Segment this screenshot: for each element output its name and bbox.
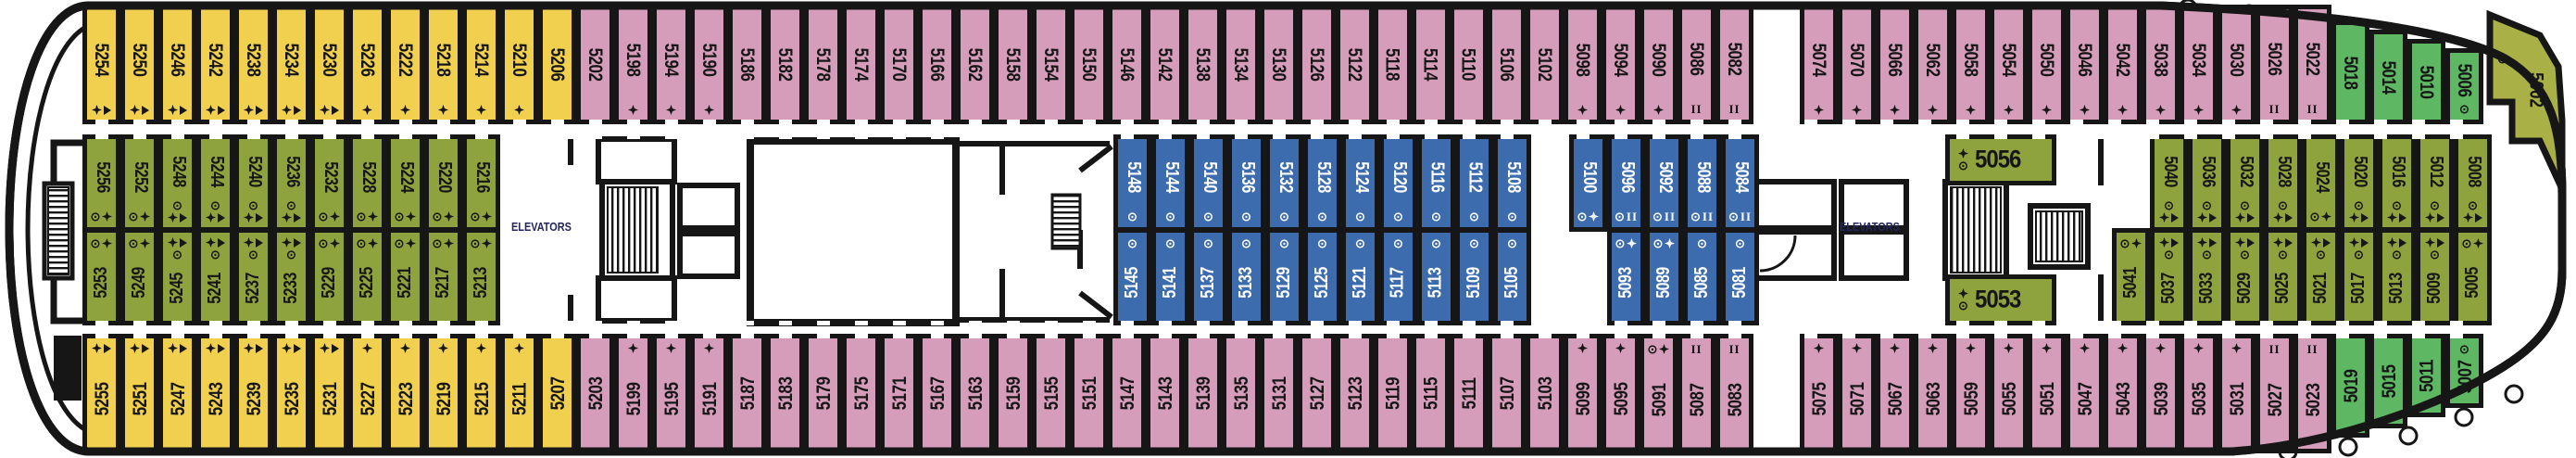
- cabin-5012: 5012⊙: [2416, 134, 2454, 232]
- circle-dot-icon: ⊙: [1203, 210, 1213, 223]
- cabin-icons: ⊙: [1507, 210, 1517, 223]
- star-icon: [2080, 343, 2090, 353]
- cabin-number: 5198: [617, 14, 650, 105]
- cabin-5133: ⊙5133: [1227, 228, 1265, 325]
- cabin-icons: ⊙: [244, 199, 263, 223]
- cabin-5226: 5226: [348, 5, 386, 124]
- circle-dot-icon: ⊙: [1355, 237, 1365, 249]
- cabin-number: 5042: [2106, 14, 2140, 105]
- cabin-5093: ⊙5093: [1607, 228, 1645, 325]
- triangle-icon: [180, 106, 187, 115]
- cabin-5182: 5182: [766, 5, 804, 124]
- cabin-number: 5190: [693, 14, 726, 105]
- cabin-5211: 5211: [500, 334, 538, 453]
- cabin-5128: 5128⊙: [1303, 134, 1341, 232]
- cabin-number: 5143: [1149, 343, 1182, 444]
- circle-dot-icon: ⊙: [2430, 248, 2440, 261]
- star-icon: [206, 212, 216, 223]
- cabin-icons: ⊙: [2197, 199, 2217, 223]
- cabin-icons: ⊙: [1653, 237, 1676, 249]
- cabin-number: 5055: [1992, 353, 2026, 444]
- circle-dot-icon: ⊙: [319, 237, 329, 249]
- cabin-5174: 5174: [842, 5, 880, 124]
- triangle-icon: [332, 344, 339, 353]
- circle-dot-icon: ⊙: [2392, 199, 2402, 211]
- circle-dot-icon: ⊙: [2354, 248, 2364, 261]
- cabin-number: 5144: [1155, 144, 1187, 210]
- cabin-number: 5182: [769, 14, 802, 115]
- cabin-icons: ⊙: [2159, 199, 2179, 223]
- cabin-icons: ⊙II: [1652, 210, 1676, 223]
- cabin-5251: 5251: [120, 334, 158, 453]
- cabin-5074: 5074: [1800, 5, 1838, 124]
- cabin-number: 5230: [313, 14, 346, 105]
- cabin-5256: 5256⊙: [82, 134, 120, 232]
- cabin-5162: 5162: [956, 5, 994, 124]
- cabin-icons: [704, 105, 714, 115]
- cabin-5220: 5220⊙: [424, 134, 462, 232]
- cabin-icons: [666, 343, 676, 353]
- cabin-icons: [2042, 343, 2052, 353]
- circle-dot-icon: ⊙: [1469, 237, 1479, 249]
- cabin-number: 5187: [731, 343, 764, 444]
- cabin-number: 5237: [238, 261, 270, 316]
- cabin-number: 5194: [655, 14, 688, 105]
- cabin-icons: ⊙: [1469, 210, 1479, 223]
- cabin-number: 5094: [1604, 14, 1638, 105]
- cabin-number: 5075: [1803, 353, 1836, 444]
- cabin-icons: ⊙: [1241, 210, 1251, 223]
- cabin-icons: ⊙: [1648, 343, 1670, 355]
- cabin-5141: ⊙5141: [1151, 228, 1189, 325]
- cabin-icons: ⊙: [2459, 103, 2469, 115]
- cabin-number: 5202: [579, 14, 612, 115]
- circle-dot-icon: ⊙: [2430, 199, 2440, 211]
- cabin-5037: ⊙5037: [2150, 228, 2188, 325]
- circle-dot-icon: ⊙: [2459, 343, 2469, 355]
- cabin-number: 5251: [123, 353, 157, 444]
- cabin-icons: [1814, 105, 1824, 115]
- circle-dot-icon: ⊙: [1735, 237, 1745, 249]
- cabin-number: 5035: [2182, 353, 2216, 444]
- cabin-5127: 5127: [1298, 334, 1336, 453]
- triangle-icon: [2247, 213, 2255, 223]
- cabin-icons: ⊙: [1355, 210, 1365, 223]
- cabin-icons: ⊙II: [1615, 210, 1638, 223]
- cabin-5253: ⊙5253: [82, 228, 120, 325]
- twin-bars-icon: II: [1728, 343, 1740, 355]
- circle-dot-icon: ⊙: [395, 210, 405, 223]
- cabin-number: 5040: [2154, 144, 2185, 199]
- cabin-icons: [438, 105, 448, 115]
- star-icon: [206, 237, 216, 248]
- cabin-number: 5231: [313, 353, 346, 444]
- cabin-icons: ⊙: [1697, 237, 1707, 249]
- cabin-5244: 5244⊙: [196, 134, 234, 232]
- twin-bars-icon: II: [1690, 343, 1702, 355]
- cabin-number: 5113: [1421, 249, 1451, 316]
- star-icon: [244, 237, 254, 248]
- star-icon: [2193, 343, 2204, 353]
- cabin-number: 5127: [1301, 343, 1334, 444]
- star-icon: [1577, 105, 1588, 115]
- cabin-number: 5171: [883, 343, 916, 444]
- cabin-5138: 5138: [1184, 5, 1222, 124]
- triangle-icon: [104, 344, 111, 353]
- triangle-icon: [2399, 213, 2406, 223]
- cabin-number: 5195: [655, 353, 688, 444]
- cabin-5009: ⊙5009: [2416, 228, 2454, 325]
- circle-dot-icon: ⊙: [91, 210, 101, 223]
- cabin-5107: 5107: [1488, 334, 1526, 453]
- cabin-number: 5102: [1528, 14, 1562, 115]
- cabin-number: 5136: [1231, 144, 1263, 210]
- cabin-number: 5235: [275, 353, 308, 444]
- cabin-number: 5139: [1187, 343, 1220, 444]
- cabin-5038: 5038: [2142, 5, 2180, 124]
- triangle-icon: [256, 238, 263, 248]
- cabin-number: 5114: [1414, 14, 1447, 115]
- cabin-number: 5038: [2144, 14, 2178, 105]
- cabin-icons: ⊙: [2120, 237, 2142, 249]
- cabin-number: 5122: [1338, 14, 1372, 115]
- cabin-number: 5220: [428, 144, 459, 210]
- cabin-icons: ⊙: [1431, 237, 1441, 249]
- cabin-5016: 5016⊙: [2378, 134, 2416, 232]
- cabin-icons: ⊙: [1279, 237, 1289, 249]
- cabin-number: 5214: [465, 14, 498, 105]
- cabin-number: 5010: [2410, 48, 2444, 115]
- cabin-5132: 5132⊙: [1265, 134, 1303, 232]
- circle-dot-icon: ⊙: [1958, 159, 1968, 172]
- cabin-icons: ⊙: [1241, 237, 1251, 249]
- cabin-number: 5051: [2030, 353, 2064, 444]
- circle-dot-icon: ⊙: [2459, 103, 2469, 115]
- star-icon: [2231, 105, 2242, 115]
- star-icon: [168, 237, 178, 248]
- cabin-number: 5084: [1725, 144, 1756, 210]
- cabin-number: 5215: [465, 353, 498, 444]
- cabin-5175: 5175: [842, 334, 880, 453]
- triangle-icon: [2171, 238, 2179, 248]
- cabin-5148: 5148⊙: [1113, 134, 1151, 232]
- cabin-number: 5088: [1687, 144, 1718, 210]
- cabin-number: 5031: [2220, 353, 2254, 444]
- cabin-number: 5140: [1193, 144, 1225, 210]
- cabin-5027: II5027: [2256, 334, 2293, 453]
- star-icon: [2231, 343, 2242, 353]
- cabin-icons: [168, 343, 187, 353]
- cabin-icons: ⊙: [206, 199, 225, 223]
- cabin-number: 5236: [276, 144, 308, 199]
- cabin-number: 5093: [1611, 249, 1642, 316]
- star-icon: [2387, 212, 2397, 223]
- star-icon: [444, 211, 454, 222]
- star-icon: [1966, 343, 1976, 353]
- circle-dot-icon: ⊙: [1355, 210, 1365, 223]
- star-icon: [2193, 105, 2204, 115]
- cabin-icons: [2042, 105, 2052, 115]
- circle-dot-icon: ⊙: [1165, 210, 1175, 223]
- cabin-5231: 5231: [310, 334, 348, 453]
- cabin-number: 5108: [1497, 144, 1528, 210]
- circle-dot-icon: ⊙: [286, 248, 296, 261]
- star-icon: [2273, 212, 2283, 223]
- star-icon: [438, 105, 448, 115]
- cabin-5186: 5186: [728, 5, 766, 124]
- triangle-icon: [2209, 238, 2217, 248]
- cabin-5055: 5055: [1990, 334, 2028, 453]
- cabin-number: 5130: [1263, 14, 1296, 115]
- cabin-icons: [514, 105, 524, 115]
- star-icon: [168, 105, 178, 115]
- cabin-5131: 5131: [1260, 334, 1298, 453]
- cabin-number: 5059: [1954, 353, 1988, 444]
- cabin-icons: ⊙: [471, 237, 493, 249]
- cabin-icons: [400, 343, 410, 353]
- cabin-number: 5066: [1879, 14, 1912, 105]
- circle-dot-icon: ⊙: [1241, 210, 1251, 223]
- twin-bars-icon: II: [1627, 210, 1638, 223]
- star-icon: [1589, 211, 1599, 222]
- cabin-icons: [282, 343, 301, 353]
- cabin-number: 5154: [1035, 14, 1068, 115]
- cabin-icons: ⊙: [129, 237, 151, 249]
- cabin-icons: ⊙: [2459, 343, 2469, 355]
- star-icon: [2425, 237, 2435, 248]
- star-icon: [102, 238, 112, 248]
- cabin-5059: 5059: [1952, 334, 1990, 453]
- cabin-5116: 5116⊙: [1417, 134, 1455, 232]
- star-icon: [2117, 343, 2128, 353]
- cabin-icons: [244, 105, 263, 115]
- cabin-number: 5131: [1263, 343, 1296, 444]
- cabin-5247: 5247: [158, 334, 196, 453]
- cabin-5025: ⊙5025: [2264, 228, 2302, 325]
- circle-dot-icon: ⊙: [248, 248, 258, 261]
- circle-dot-icon: ⊙: [2164, 199, 2174, 211]
- cabin-5166: 5166: [918, 5, 956, 124]
- star-icon: [1627, 238, 1637, 248]
- twin-bars-icon: II: [2268, 343, 2280, 355]
- cabin-number: 5256: [86, 144, 118, 210]
- cabin-number: 5233: [276, 261, 308, 316]
- star-icon: [362, 105, 372, 115]
- star-icon: [330, 238, 340, 248]
- cabin-icons: [1577, 105, 1588, 115]
- star-icon: [2425, 212, 2435, 223]
- cabin-number: 5023: [2296, 355, 2330, 444]
- cabin-icons: ⊙: [433, 210, 455, 223]
- cabin-number: 5207: [541, 343, 574, 444]
- star-icon: [1615, 105, 1626, 115]
- star-icon: [168, 343, 178, 353]
- triangle-icon: [2285, 213, 2293, 223]
- circle-dot-icon: ⊙: [129, 210, 139, 223]
- cabin-number: 5217: [428, 249, 459, 316]
- cabin-5046: 5046: [2066, 5, 2104, 124]
- cabin-number: 5047: [2068, 353, 2102, 444]
- cabin-5047: 5047: [2066, 334, 2104, 453]
- cabin-number: 5081: [1725, 249, 1756, 316]
- triangle-icon: [142, 106, 149, 115]
- cabin-number: 5067: [1879, 353, 1912, 444]
- cabin-5106: 5106: [1488, 5, 1526, 124]
- cabin-number: 5186: [731, 14, 764, 115]
- cabin-number: 5083: [1718, 355, 1752, 444]
- cabin-number: 5096: [1611, 144, 1642, 210]
- cabin-icons: [206, 343, 225, 353]
- cabin-icons: ⊙: [395, 237, 417, 249]
- cabin-icons: ⊙: [1393, 237, 1403, 249]
- star-icon: [2387, 237, 2397, 248]
- star-icon: [666, 343, 676, 353]
- cabin-number: 5106: [1490, 14, 1524, 115]
- cabin-number: 5008: [2457, 144, 2489, 199]
- cabin-5102: 5102: [1526, 5, 1564, 124]
- cabin-icons: [362, 343, 372, 353]
- circle-dot-icon: ⊙: [1958, 299, 1968, 312]
- cabin-number: 5014: [2372, 39, 2406, 115]
- cabin-number: 5033: [2192, 261, 2223, 316]
- cabin-5248: 5248⊙: [158, 134, 196, 232]
- cabin-5033: ⊙5033: [2188, 228, 2226, 325]
- cabin-5179: 5179: [804, 334, 842, 453]
- cabin-5007: ⊙5007: [2445, 334, 2483, 408]
- circle-dot-icon: ⊙: [1615, 237, 1626, 249]
- cabin-icons: ⊙: [1165, 210, 1175, 223]
- star-icon: [130, 343, 140, 353]
- cabin-icons: [438, 343, 448, 353]
- cabin-5238: 5238: [234, 5, 272, 124]
- twin-bars-icon: II: [2268, 103, 2280, 115]
- star-icon: [140, 211, 150, 222]
- cabin-icons: ⊙: [2425, 237, 2444, 261]
- cabin-icons: [2004, 343, 2014, 353]
- cabin-icons: [1814, 343, 1824, 353]
- cabin-number: 5155: [1035, 343, 1068, 444]
- cabin-5031: 5031: [2218, 334, 2256, 453]
- cabin-5187: 5187: [728, 334, 766, 453]
- circle-dot-icon: ⊙: [2120, 237, 2130, 249]
- cabin-number: 5150: [1073, 14, 1106, 115]
- cabin-5015: 5015: [2369, 334, 2407, 428]
- cabin-5249: ⊙5249: [120, 228, 158, 325]
- cabin-5118: 5118: [1374, 5, 1412, 124]
- cabin-icons: ⊙: [1203, 237, 1213, 249]
- star-icon: [320, 343, 330, 353]
- cabin-number: 5087: [1680, 355, 1714, 444]
- star-icon: [2004, 343, 2014, 353]
- cabin-5242: 5242: [196, 5, 234, 124]
- circle-dot-icon: ⊙: [357, 237, 367, 249]
- cabin-icons: [1890, 343, 1900, 353]
- cabin-icons: ⊙: [1355, 237, 1365, 249]
- circle-dot-icon: ⊙: [286, 199, 296, 211]
- circle-dot-icon: ⊙: [2316, 248, 2326, 261]
- cabin-5241: ⊙5241: [196, 228, 234, 325]
- cabin-number: 5174: [845, 14, 878, 115]
- circle-dot-icon: ⊙: [433, 210, 443, 223]
- cabin-number: 5248: [162, 144, 194, 199]
- cabin-icons: ⊙: [1393, 210, 1403, 223]
- cabin-icons: II: [1728, 343, 1740, 355]
- cabin-5234: 5234: [272, 5, 310, 124]
- circle-dot-icon: ⊙: [1653, 237, 1664, 249]
- cabin-icons: ⊙: [282, 237, 301, 261]
- cabin-icons: ⊙: [2197, 237, 2217, 261]
- cabin-5147: 5147: [1108, 334, 1146, 453]
- cabin-5230: 5230: [310, 5, 348, 124]
- cabin-5082: 5082II: [1715, 5, 1753, 124]
- star-icon: [168, 212, 178, 223]
- circle-dot-icon: ⊙: [210, 248, 220, 261]
- circle-dot-icon: ⊙: [357, 210, 367, 223]
- cabin-number: 5244: [200, 144, 232, 199]
- cabin-icons: [320, 105, 339, 115]
- circle-dot-icon: ⊙: [1652, 210, 1663, 223]
- cabin-number: 5255: [85, 353, 119, 444]
- cabin-number: 5116: [1421, 144, 1451, 210]
- cabin-number: 5159: [997, 343, 1030, 444]
- circle-dot-icon: ⊙: [1690, 210, 1701, 223]
- cabin-5245: ⊙5245: [158, 228, 196, 325]
- cabin-5124: 5124⊙: [1341, 134, 1379, 232]
- cabin-5011: 5011: [2407, 334, 2445, 417]
- cabin-5096: 5096⊙II: [1607, 134, 1645, 232]
- cabin-5137: ⊙5137: [1189, 228, 1227, 325]
- cabin-5219: 5219: [424, 334, 462, 453]
- cabin-icons: [476, 105, 486, 115]
- star-icon: [1814, 343, 1824, 353]
- cabin-5123: 5123: [1336, 334, 1374, 453]
- circle-dot-icon: ⊙: [1393, 237, 1403, 249]
- cabin-icons: ⊙: [1507, 237, 1517, 249]
- cabin-icons: [2117, 343, 2128, 353]
- cabin-5122: 5122: [1336, 5, 1374, 124]
- cabin-icons: [2231, 105, 2242, 115]
- cabin-number: 5191: [693, 353, 726, 444]
- cabin-5125: ⊙5125: [1303, 228, 1341, 325]
- cabin-5236: 5236⊙: [272, 134, 310, 232]
- cabin-number: 5210: [503, 14, 536, 105]
- cabin-number: 5253: [86, 249, 118, 316]
- cabin-5063: 5063: [1914, 334, 1952, 453]
- cabin-icons: ⊙: [2235, 237, 2255, 261]
- cabin-icons: [628, 105, 638, 115]
- cabin-icons: ⊙: [282, 199, 301, 223]
- cabin-5136: 5136⊙: [1227, 134, 1265, 232]
- circle-dot-icon: ⊙: [2240, 248, 2250, 261]
- cabin-icons: ⊙: [2349, 237, 2369, 261]
- circle-dot-icon: ⊙: [172, 248, 182, 261]
- circle-dot-icon: ⊙: [433, 237, 443, 249]
- circle-dot-icon: ⊙: [1431, 210, 1441, 223]
- cabin-number: 5022: [2296, 14, 2330, 103]
- circle-dot-icon: ⊙: [2278, 199, 2288, 211]
- circle-dot-icon: ⊙: [1393, 210, 1403, 223]
- cabin-icons: [666, 105, 676, 115]
- cabin-5018: 5018: [2331, 20, 2369, 124]
- circle-dot-icon: ⊙: [172, 199, 182, 211]
- star-icon: [1928, 105, 1938, 115]
- cabin-icons: ⊙II: [1690, 210, 1714, 223]
- cabin-5221: ⊙5221: [386, 228, 424, 325]
- star-icon: [92, 343, 102, 353]
- circle-dot-icon: ⊙: [1615, 210, 1625, 223]
- cabin-number: 5070: [1841, 14, 1874, 105]
- cabin-icons: ⊙: [1577, 210, 1600, 223]
